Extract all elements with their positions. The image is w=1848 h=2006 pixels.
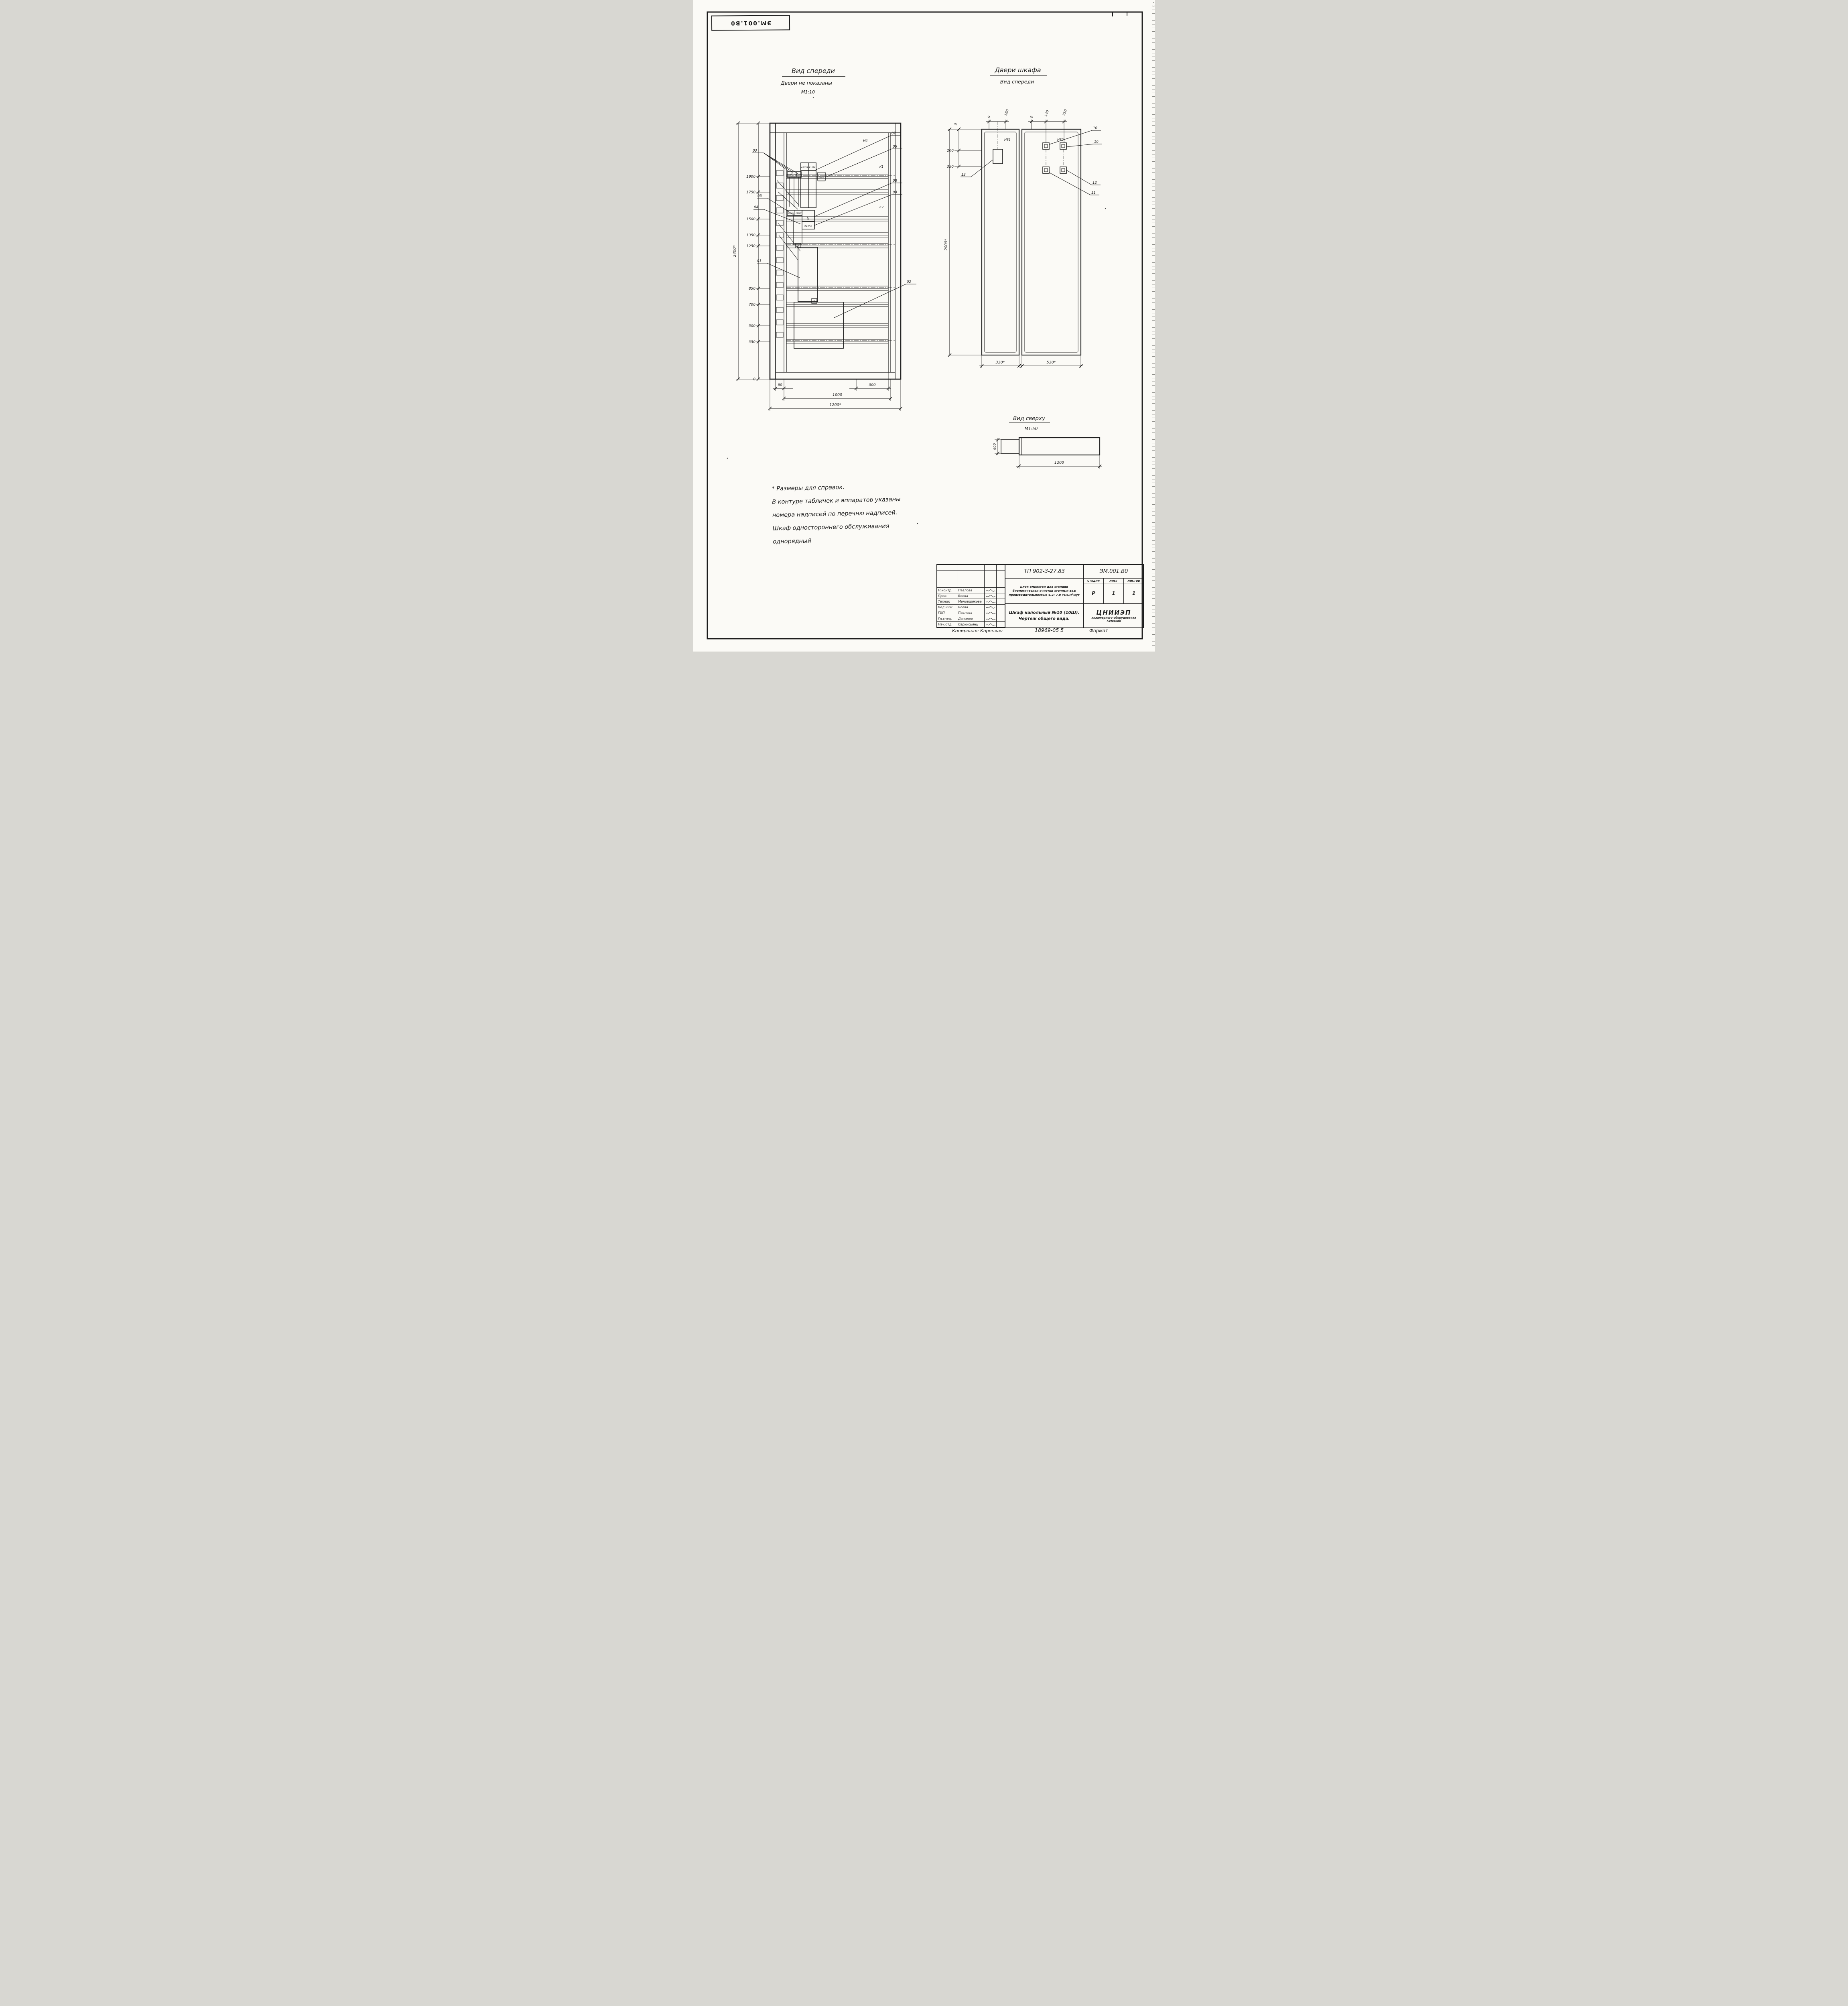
dim-60: 60: [778, 383, 782, 387]
empty-cell: [985, 565, 997, 571]
callout-10b: 10: [1094, 140, 1099, 144]
date-cell: [997, 588, 1005, 593]
organization-name: ЦНИИЭП: [1096, 609, 1131, 616]
callout-03: 03: [753, 149, 757, 153]
person-role: Вед.инж.: [937, 605, 957, 610]
dim-1000: 1000: [833, 393, 842, 397]
front-view-subtitle: Двери не показаны: [780, 80, 832, 86]
component-label: #10КК: [788, 212, 794, 215]
dim-door1-160: 160: [1004, 109, 1010, 116]
empty-cell: [997, 582, 1005, 588]
signature: [985, 610, 997, 616]
dim-1750: 1750: [746, 191, 755, 195]
dim-350: 350: [749, 340, 755, 344]
dim-door1-0: 0: [987, 116, 991, 119]
empty-cell: [997, 571, 1005, 576]
drawing-sheet: ЭМ.001.В0 Вид спереди Двери не показаны …: [693, 0, 1155, 652]
stage-value: Р: [1084, 583, 1104, 603]
project-name: Блок емкостей для станции биологической …: [1005, 578, 1084, 603]
doors-view: Двери шкафа Вид спереди Н51 Н52: [944, 66, 1102, 368]
sheets-header: ЛИСТОВ: [1124, 578, 1144, 583]
person-role: Техник: [937, 599, 957, 605]
title-block: Н.контр.ПавловаПров.БоеваТехникМеновщико…: [936, 564, 1144, 628]
label-k1: К1: [879, 165, 883, 169]
title-block-signatures-grid: Н.контр.ПавловаПров.БоеваТехникМеновщико…: [937, 565, 1005, 627]
dim-1200: 1200*: [830, 403, 841, 407]
doors-view-subtitle: Вид спереди: [1000, 79, 1034, 85]
sheet-header: ЛИСТ: [1104, 578, 1124, 583]
callout-09: 09: [893, 191, 897, 195]
format-note: Формат: [1089, 628, 1108, 633]
document-number: 18969-05 5: [1035, 627, 1064, 633]
organization-city: г.Москва: [1107, 619, 1121, 623]
dim-850: 850: [749, 287, 755, 291]
front-view: Вид спереди Двери не показаны М1:10: [733, 67, 916, 411]
dim-2000: 2000*: [944, 239, 948, 250]
sheet-value: 1: [1104, 583, 1124, 603]
empty-cell: [937, 576, 957, 582]
scan-edge-artifact: [1152, 0, 1155, 652]
callout-13: 13: [961, 173, 966, 177]
label-h51: Н51: [1004, 138, 1011, 142]
empty-cell: [997, 565, 1005, 571]
doc-type: ТП 902-3-27.83: [1005, 565, 1084, 578]
empty-cell: [937, 565, 957, 571]
dim-door2-0: 0: [1030, 116, 1034, 119]
dim-1900: 1900: [746, 175, 755, 179]
doors-view-title: Двери шкафа: [994, 66, 1041, 74]
signature: [985, 605, 997, 610]
person-role: Нач.отд.: [937, 622, 957, 627]
date-cell: [997, 605, 1005, 610]
dim-1250: 1250: [746, 244, 755, 248]
copied-by: Копировал: Корецкая: [952, 628, 1003, 633]
empty-cell: [985, 571, 997, 576]
date-cell: [997, 593, 1005, 599]
top-view: Вид сверху М1:50 600 1200: [993, 415, 1102, 469]
person-role: ГИП: [937, 610, 957, 616]
date-cell: [997, 610, 1005, 616]
callout-04: 04: [754, 205, 758, 209]
top-view-title: Вид сверху: [1013, 415, 1046, 422]
date-cell: [997, 622, 1005, 627]
signature: [985, 622, 997, 627]
dim-600: 600: [993, 443, 997, 450]
sheets-value: 1: [1124, 583, 1144, 603]
person-name: Данилов: [957, 616, 985, 622]
organization: ЦНИИЭП инженерного оборудования г.Москва: [1084, 603, 1144, 627]
dim-0: 0: [753, 378, 755, 382]
dim-1350: 1350: [746, 233, 755, 238]
person-name: Меновщикова: [957, 599, 985, 605]
drawing-title: Шкаф напольный №10 (10Ш). Чертеж общего …: [1005, 603, 1084, 627]
dim-500: 500: [749, 324, 755, 328]
drawing-title-line: Чертеж общего вида.: [1019, 616, 1070, 622]
callout-11: 11: [1091, 191, 1096, 195]
dim-700: 700: [749, 303, 755, 307]
callout-02: 02: [907, 280, 911, 284]
components: #10К1 #10К2 #10К3 #10ТА #10ТА #10Fu #10К…: [787, 163, 843, 348]
top-view-scale: М1:50: [1025, 426, 1038, 431]
component-label: Ц: [807, 217, 810, 221]
label-h1: Н1: [863, 139, 868, 143]
front-view-scale: М1:10: [801, 89, 815, 95]
empty-cell: [997, 576, 1005, 582]
project-line: Блок емкостей для станции: [1020, 585, 1068, 589]
empty-cell: [957, 582, 985, 588]
person-role: Н.контр.: [937, 588, 957, 593]
drawing-title-line: Шкаф напольный №10 (10Ш).: [1009, 610, 1079, 616]
component-label: #10ТА: [801, 166, 808, 169]
title-block-right: ТП 902-3-27.83 ЭМ.001.В0 Блок емкостей д…: [1005, 565, 1144, 627]
stage-header: СТАДИЯ: [1084, 578, 1104, 583]
callout-07: 07: [892, 132, 896, 136]
component-label: #10R1: [804, 225, 812, 227]
component-label: #10ТА: [808, 166, 816, 169]
date-cell: [997, 616, 1005, 622]
doors-dims-bottom: 330* 530*: [979, 355, 1083, 368]
signature: [985, 616, 997, 622]
component-label: #10Fu: [818, 176, 824, 179]
dim-2400: 2400*: [733, 245, 737, 257]
signature: [985, 593, 997, 599]
component-label: #10КТ: [796, 212, 802, 215]
dim-1500: 1500: [746, 217, 755, 221]
dim-530: 530*: [1047, 360, 1056, 365]
callout-12: 12: [1093, 181, 1097, 185]
empty-cell: [985, 576, 997, 582]
front-view-title: Вид спереди: [792, 67, 835, 75]
dim-330: 330*: [996, 360, 1005, 365]
notes: * Размеры для справок. В контуре табличе…: [772, 482, 949, 552]
callout-01: 01: [757, 259, 762, 263]
callout-06: 06: [893, 145, 897, 149]
date-cell: [997, 599, 1005, 605]
person-role: Пров.: [937, 593, 957, 599]
project-line: биологической очистки сточных вод: [1013, 589, 1076, 593]
person-name: Боева: [957, 605, 985, 610]
person-name: Павлова: [957, 610, 985, 616]
callout-08: 08: [893, 179, 897, 183]
person-role: Гл.спец.: [937, 616, 957, 622]
signature: [985, 588, 997, 593]
person-name: Боева: [957, 593, 985, 599]
callout-10a: 10: [1093, 126, 1097, 130]
door-hardware: [1043, 143, 1066, 173]
label-k2: К2: [879, 205, 883, 209]
organization-line: инженерного оборудования: [1091, 616, 1136, 619]
dim-door2-310: 310: [1062, 109, 1068, 116]
dim-1200-top: 1200: [1054, 461, 1064, 465]
empty-cell: [985, 582, 997, 588]
dim-side-200: 200: [947, 149, 954, 153]
empty-cell: [957, 565, 985, 571]
chip-label: 2: [797, 244, 799, 248]
empty-cell: [957, 576, 985, 582]
drawing-linework: Вид спереди Двери не показаны М1:10: [693, 0, 1155, 652]
chip-label: 2: [813, 300, 815, 303]
project-line: производительностью 4,2; 7,0 тыс.м³/сут: [1009, 593, 1079, 597]
front-dims-left: 1900 1750 1500 1350 1250 850 700 500 350…: [733, 122, 770, 382]
front-callouts: 03 05 04 01 07 06 08 09 02: [752, 132, 916, 318]
doors-dims-side: 0 200 350 2000*: [944, 123, 982, 357]
person-name: Саркисьянц: [957, 622, 985, 627]
dim-side-350: 350: [947, 165, 954, 169]
dim-side-0: 0: [954, 123, 958, 126]
empty-cell: [957, 571, 985, 576]
dim-300: 300: [869, 383, 875, 387]
signature: [985, 599, 997, 605]
empty-cell: [937, 582, 957, 588]
dim-door2-140: 140: [1044, 110, 1050, 117]
empty-cell: [937, 571, 957, 576]
doc-code: ЭМ.001.В0: [1084, 565, 1144, 578]
front-dims-bottom: 60 300 1000 1200*: [768, 372, 902, 411]
person-name: Павлова: [957, 588, 985, 593]
